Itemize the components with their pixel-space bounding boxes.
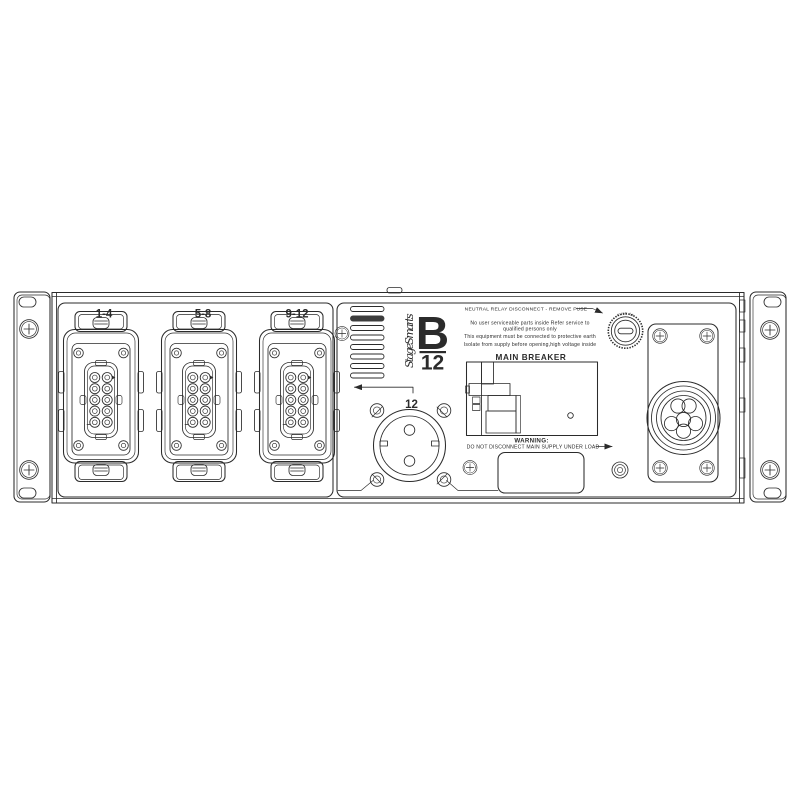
recess-outline (338, 481, 373, 491)
phillips-screw-icon (653, 329, 668, 344)
brand-logo: StageSmarts (403, 313, 416, 368)
fuse-holder: FUSE 2A (608, 312, 642, 349)
power-inlet-connector (647, 382, 720, 455)
multipin-connector-body (157, 312, 242, 482)
recess-outline (447, 481, 499, 491)
service-note-line2: qualified persons only (503, 327, 557, 333)
ring-screw-icon (437, 473, 451, 487)
multipin-connector-body (59, 312, 144, 482)
phillips-screw-icon (20, 320, 39, 339)
earth-note: This equipment must be connected to prot… (464, 334, 596, 340)
mounting-slot (19, 297, 36, 307)
multipin-connector-1: 1-4 (59, 309, 144, 482)
phillips-screw-icon (20, 461, 39, 480)
isolate-note: Isolate from supply before opening,high … (464, 342, 597, 348)
notice-texts: NEUTRAL RELAY DISCONNECT - REMOVE FUSE N… (464, 307, 603, 349)
multipin-connector-2: 5-8 (157, 309, 242, 482)
inlet-pin (671, 399, 685, 413)
vent-grille (351, 307, 385, 379)
rack-ear-right (750, 292, 786, 502)
warning-body: DO NOT DISCONNECT MAIN SUPPLY UNDER LOAD (467, 445, 600, 451)
multipin-connector-3: 9-12 (255, 309, 340, 482)
schuko-pin-hole (404, 425, 415, 436)
schuko-pin-hole (404, 456, 415, 467)
schuko-channel-callout: 12 (355, 387, 418, 411)
model-number: 12 (421, 352, 444, 375)
schuko-earth-clip (432, 441, 440, 446)
fuse-slot (618, 328, 633, 334)
breaker-panel-hole (568, 413, 574, 419)
ring-screw-icon (370, 473, 384, 487)
warning-title: WARNING: (514, 438, 548, 445)
chassis (52, 288, 745, 504)
inlet-pin (682, 399, 696, 413)
model-badge: B 12 (416, 307, 449, 375)
main-breaker: MAIN BREAKER (466, 353, 598, 436)
phillips-screw-icon (761, 461, 780, 480)
page: 1-4 5-8 9-12 StageSmarts B 12 12 (0, 0, 800, 800)
phillips-screw-icon (463, 461, 477, 475)
phillips-screw-icon (700, 329, 715, 344)
phillips-screw-icon (700, 461, 715, 476)
warning-notice: WARNING: DO NOT DISCONNECT MAIN SUPPLY U… (467, 438, 612, 451)
phillips-screw-icon (761, 321, 780, 340)
mounting-slot (764, 488, 781, 498)
ring-screw-icon (370, 404, 384, 418)
socket-head-screw-icon (612, 462, 628, 478)
callout-arrow (355, 387, 414, 393)
mounting-slot (764, 297, 781, 307)
multipin-connector-body (255, 312, 340, 482)
vent-slot-dark (351, 316, 385, 321)
power-distro-rear-panel-drawing: 1-4 5-8 9-12 StageSmarts B 12 12 (0, 0, 800, 800)
blank-label-plate (498, 453, 584, 494)
mounting-slot (19, 488, 36, 498)
power-inlet-plate (647, 324, 720, 482)
schuko-earth-clip (380, 441, 388, 446)
breaker-handle (469, 384, 510, 396)
rack-ear-left (14, 292, 50, 502)
schuko-socket (370, 404, 451, 487)
ring-screw-icon (437, 404, 451, 418)
neutral-relay-note: NEUTRAL RELAY DISCONNECT - REMOVE FUSE (465, 307, 588, 313)
main-breaker-label: MAIN BREAKER (496, 353, 567, 362)
phillips-screw-icon (653, 461, 668, 476)
